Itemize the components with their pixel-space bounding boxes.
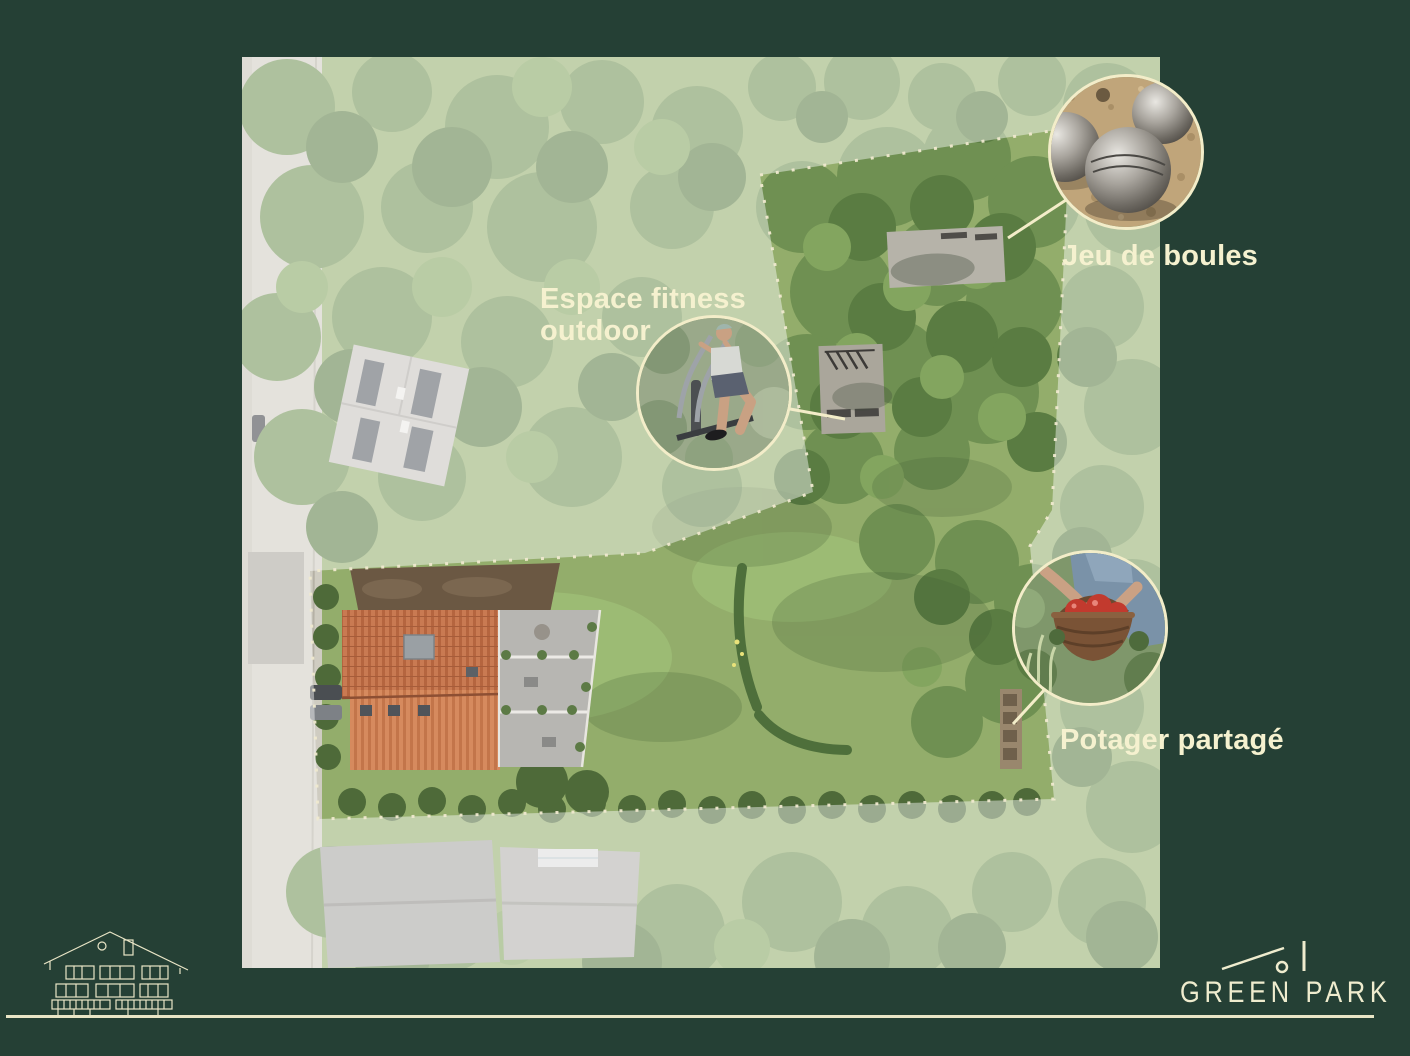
- aerial-photo: [242, 57, 1160, 968]
- fitness-label-line2: outdoor: [540, 315, 651, 347]
- chalet-elevation-drawing: [30, 928, 200, 1018]
- brand-block: GREEN PARK: [1180, 933, 1400, 1008]
- boules-label: Jeu de boules: [1062, 240, 1258, 272]
- footer-rule: [6, 1015, 1374, 1018]
- boules-callout-photo: [1048, 74, 1204, 230]
- fitness-label: Espace fitness outdoor: [540, 283, 746, 348]
- skylight: [404, 635, 434, 659]
- main-building: [310, 610, 600, 770]
- potager-callout-photo: [1012, 550, 1168, 706]
- fitness-area: [818, 344, 893, 434]
- boules-court: [887, 226, 1006, 288]
- brand-wordmark: GREEN PARK: [1180, 975, 1387, 1009]
- potager-label: Potager partagé: [1060, 724, 1284, 756]
- vegetable-basket-icon: [1015, 553, 1165, 703]
- site-plan-rendering: [242, 57, 1160, 968]
- parked-car: [310, 685, 342, 700]
- petanque-balls-icon: [1051, 77, 1201, 227]
- fitness-label-line1: Espace fitness: [540, 283, 746, 315]
- garden-beds: [1000, 689, 1022, 769]
- roofline-logo-mark: [1218, 933, 1328, 975]
- slide: Espace fitness outdoor Jeu de boules Pot…: [0, 0, 1410, 1056]
